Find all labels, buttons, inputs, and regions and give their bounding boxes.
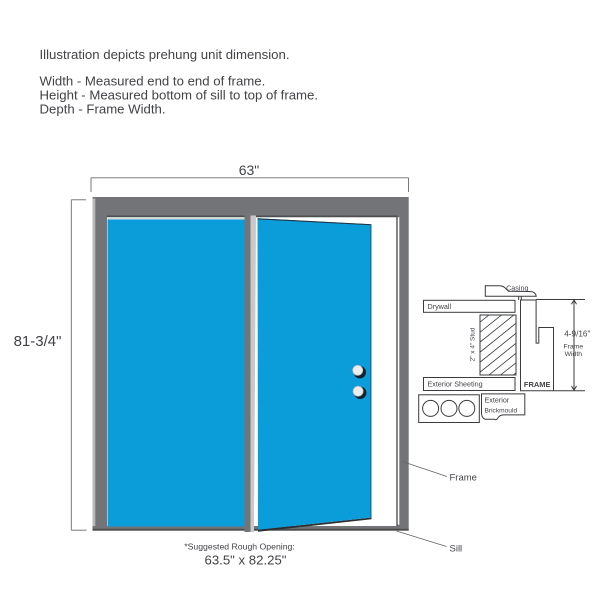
svg-text:Illustration depicts prehung u: Illustration depicts prehung unit dimens…	[40, 47, 290, 62]
svg-text:Frame: Frame	[563, 343, 583, 350]
svg-text:Brickmould: Brickmould	[485, 407, 518, 414]
svg-text:Casing: Casing	[506, 283, 528, 292]
svg-text:Exterior Sheeting: Exterior Sheeting	[428, 380, 483, 389]
svg-text:63": 63"	[239, 162, 260, 178]
svg-text:81-3/4": 81-3/4"	[14, 333, 62, 350]
svg-text:4-9/16": 4-9/16"	[564, 329, 590, 338]
svg-text:Exterior: Exterior	[485, 395, 510, 404]
svg-text:FRAME: FRAME	[524, 380, 551, 389]
svg-text:*Suggested Rough Opening:: *Suggested Rough Opening:	[184, 542, 295, 552]
svg-text:Drywall: Drywall	[428, 302, 452, 311]
svg-text:Width - Measured end to end of: Width - Measured end to end of frame.	[40, 74, 266, 89]
svg-text:Sill: Sill	[450, 544, 463, 555]
svg-text:Width: Width	[565, 351, 583, 358]
svg-text:Frame: Frame	[450, 473, 477, 484]
svg-text:Height - Measured bottom of si: Height - Measured bottom of sill to top …	[40, 88, 319, 103]
svg-text:Depth - Frame Width.: Depth - Frame Width.	[40, 102, 166, 117]
svg-text:63.5" x 82.25": 63.5" x 82.25"	[205, 553, 287, 568]
svg-text:2" x 4" Stud: 2" x 4" Stud	[470, 327, 477, 361]
